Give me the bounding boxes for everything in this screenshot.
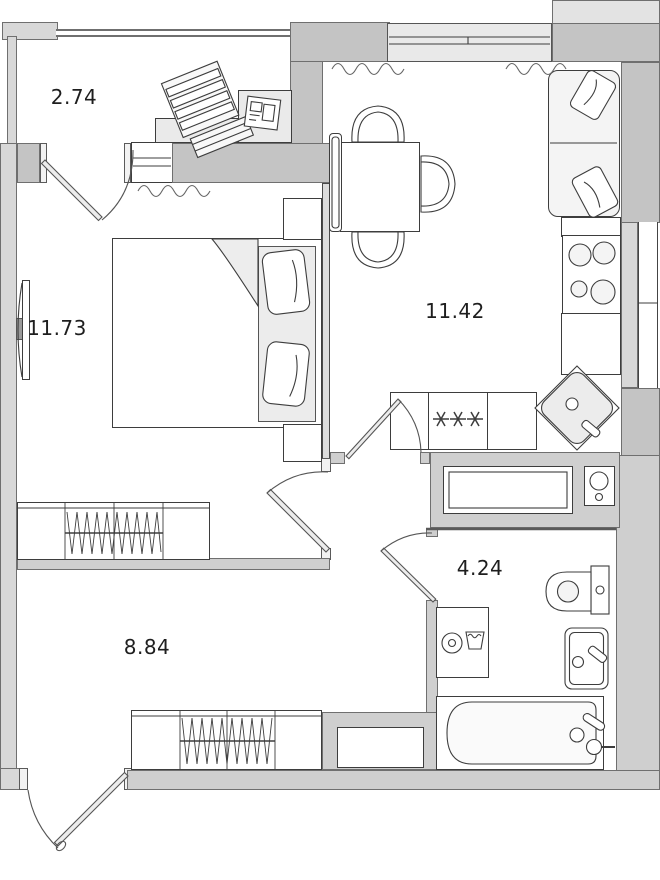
kitchen-top-window bbox=[387, 23, 552, 62]
radiator-icon-kitchen-left bbox=[332, 64, 404, 75]
room-label-loggia: 2.74 bbox=[51, 85, 98, 109]
chair-left bbox=[329, 133, 342, 232]
kitchen-door-jamb-right bbox=[420, 452, 430, 464]
hallway-niche bbox=[337, 727, 424, 768]
wardrobe-hallway bbox=[131, 710, 322, 770]
room-label-kitchen: 11.42 bbox=[425, 299, 485, 323]
bedroom-door bbox=[267, 472, 330, 552]
room-label-bedroom: 11.73 bbox=[27, 316, 87, 340]
nightstand-bottom bbox=[283, 424, 322, 462]
chair-right bbox=[421, 156, 455, 212]
wall-top-pier-left bbox=[290, 22, 390, 62]
wardrobe-bedroom bbox=[17, 502, 210, 560]
loggia-desk bbox=[238, 90, 292, 143]
dining-table bbox=[340, 142, 420, 232]
wall-loggia-bedroom-left bbox=[17, 143, 40, 183]
wall-loggia-bedroom-right bbox=[172, 143, 330, 183]
nightstand-top bbox=[283, 198, 322, 240]
bathtub bbox=[436, 696, 604, 770]
room-label-hallway: 8.84 bbox=[124, 635, 171, 659]
corner-sink bbox=[535, 366, 619, 450]
chair-top bbox=[352, 106, 404, 142]
loggia-door-jamb-left bbox=[40, 143, 47, 183]
loggia-door bbox=[42, 150, 134, 221]
cooktop bbox=[562, 235, 621, 315]
wall-left-main bbox=[0, 143, 17, 790]
room-label-bathroom: 4.24 bbox=[457, 556, 504, 580]
wall-right-upper bbox=[621, 62, 660, 223]
ventilation-duct bbox=[443, 466, 573, 514]
entrance-jamb-left bbox=[19, 768, 28, 790]
corner-sofa bbox=[548, 70, 620, 217]
wall-right-mid bbox=[621, 388, 660, 460]
refrigerator-freezer bbox=[428, 392, 488, 450]
bathroom-door bbox=[381, 533, 436, 602]
wall-right-lower bbox=[616, 455, 660, 790]
chair-bottom bbox=[352, 232, 404, 268]
wall-left-upper bbox=[7, 36, 17, 146]
kitchen-right-window bbox=[638, 222, 658, 388]
kitchen-right-window-sill bbox=[621, 222, 638, 388]
bathroom-door-jamb-top bbox=[426, 528, 438, 537]
loggia-door-jamb-right bbox=[124, 143, 131, 183]
kitchen-counter-mid bbox=[561, 313, 621, 375]
wall-top-pier-right bbox=[552, 23, 660, 62]
washing-machine bbox=[436, 607, 489, 678]
water-heater bbox=[584, 466, 615, 506]
radiator-icon-bedroom bbox=[138, 186, 210, 197]
washbasin bbox=[565, 628, 608, 689]
kitchen-counter-upper bbox=[561, 217, 621, 237]
bed-headboard-zone bbox=[258, 246, 316, 422]
toilet bbox=[546, 566, 609, 614]
entrance-door bbox=[28, 773, 128, 853]
kitchen-door-jamb-left bbox=[330, 452, 345, 464]
loggia-bench bbox=[155, 118, 239, 143]
wall-corner-top-right bbox=[552, 0, 660, 24]
wall-bottom-main bbox=[127, 770, 660, 790]
floor-plan: 2.74 11.73 11.42 4.24 8.84 bbox=[0, 0, 660, 880]
loggia-bedroom-window bbox=[131, 142, 173, 183]
loggia-glazing bbox=[56, 29, 290, 37]
